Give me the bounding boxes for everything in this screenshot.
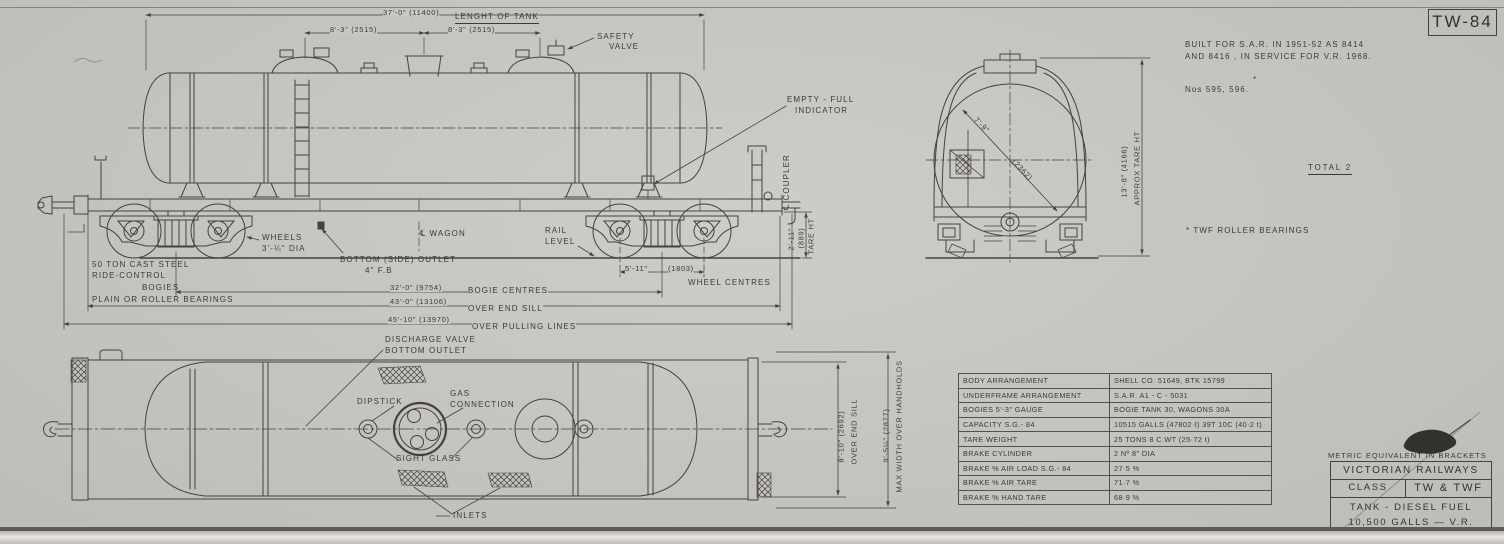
- label-discharge-valve: BOTTOM OUTLET: [385, 347, 467, 355]
- table-row: BRAKE % AIR TARE71·7 %: [959, 476, 1272, 491]
- ink-smudge: [1404, 420, 1470, 453]
- dim-max-width: MAX WIDTH OVER HANDHOLDS: [896, 360, 904, 492]
- dim-over-pulling-lines: 45'-10" (13970): [388, 316, 450, 324]
- drawing-sheet: 37'-0" (11400) LENGHT OF TANK 8'-3" (251…: [0, 0, 1504, 544]
- end-dome-bump: [100, 350, 122, 360]
- label-rail-level: RAIL: [545, 227, 567, 235]
- label-coupler-centreline: ℄ COUPLER: [783, 154, 791, 210]
- tank-valve: [471, 63, 487, 73]
- safety-valve-dome: [508, 40, 574, 73]
- dim-over-end-sill: 43'-0" (13106): [390, 298, 447, 306]
- spec-label: TARE WEIGHT: [959, 432, 1110, 447]
- walkway-hatch: [398, 470, 448, 487]
- label-bogie-centres: BOGIE CENTRES: [468, 287, 548, 295]
- label-gas-connection: CONNECTION: [450, 401, 515, 409]
- drawing-number: TW-84: [1428, 9, 1497, 36]
- label-bottom-outlet: 4" F.B: [365, 267, 393, 275]
- dim-tare-height: 2'-11": [788, 228, 796, 251]
- title-class-value: TW & TWF: [1406, 480, 1491, 497]
- spec-label: BODY ARRANGEMENT: [959, 374, 1110, 389]
- dim-tare-height: TARE HT: [808, 218, 816, 254]
- spec-value: 71·7 %: [1110, 476, 1272, 491]
- table-row: CAPACITY S.G.- 8410515 GALLS (47802 ℓ) 3…: [959, 417, 1272, 432]
- label-sight-glass: SIGHT GLASS: [396, 455, 461, 463]
- label-gas-connection: GAS: [450, 390, 470, 398]
- plan-dimensions: [762, 352, 896, 508]
- side-elevation: [38, 38, 800, 258]
- dim-bogie-centres: 32'-0" (9754): [390, 284, 442, 292]
- spec-label: BRAKE % AIR LOAD S.G.- 84: [959, 461, 1110, 476]
- drawing-canvas: [0, 0, 1504, 544]
- table-row: BRAKE CYLINDER2 Nº 8" DIA: [959, 446, 1272, 461]
- pencil-mark: [74, 58, 102, 62]
- label-over-pulling-lines: OVER PULLING LINES: [472, 323, 576, 331]
- dim-max-width: 9'-5¼" (2877): [883, 408, 891, 462]
- dim-dome-spacing-right: 8'-3" (2515): [448, 26, 495, 34]
- dim-wheel-centres: (1803): [668, 265, 694, 273]
- empty-full-leader: [654, 106, 786, 184]
- spec-label: BRAKE % AIR TARE: [959, 476, 1110, 491]
- spec-label: BRAKE % HAND TARE: [959, 490, 1110, 505]
- spec-value: 10515 GALLS (47802 ℓ) 39T 10C (40·2 t): [1110, 417, 1272, 432]
- rail-level-leader: [578, 246, 594, 256]
- table-row: BODY ARRANGEMENTSHELL CO. 51649, BTK 157…: [959, 374, 1272, 389]
- label-bearings: PLAIN OR ROLLER BEARINGS: [92, 296, 234, 304]
- label-empty-full: INDICATOR: [795, 107, 848, 115]
- label-wheels: WHEELS: [262, 234, 302, 242]
- table-row: BOGIES 5'-3" GAUGEBOGIE TANK 30, WAGONS …: [959, 403, 1272, 418]
- table-row: UNDERFRAME ARRANGEMENTS.A.R. A1 - C - 50…: [959, 388, 1272, 403]
- dim-plan-over-end-sill: 8'-10" (2692): [838, 411, 846, 463]
- label-bogies: BOGIES: [142, 284, 179, 292]
- spec-label: UNDERFRAME ARRANGEMENT: [959, 388, 1110, 403]
- handbrake-staff: [95, 156, 106, 199]
- label-rail-level: LEVEL: [545, 238, 575, 246]
- label-wheels: 3'-¼" DIA: [262, 245, 306, 253]
- note-total: TOTAL 2: [1308, 164, 1352, 175]
- label-safety-valve: VALVE: [609, 43, 639, 51]
- spec-value: 27·5 %: [1110, 461, 1272, 476]
- table-row: TARE WEIGHT25 TONS 8 C.WT (25·72 t): [959, 432, 1272, 447]
- dim-tank-length: 37'-0" (11400): [383, 9, 439, 17]
- metric-note: METRIC EQUIVALENT IN BRACKETS: [1328, 451, 1487, 460]
- title-description: TANK - DIESEL FUEL: [1331, 500, 1491, 515]
- spec-value: 2 Nº 8" DIA: [1110, 446, 1272, 461]
- tank-valve: [361, 63, 377, 73]
- label-bogies: RIDE-CONTROL: [92, 272, 166, 280]
- safety-valve-leader: [568, 38, 594, 49]
- spec-value: 68·9 %: [1110, 490, 1272, 505]
- sheet-bottom-margin: [0, 531, 1504, 544]
- note-fleet-numbers: Nos 595, 596.: [1185, 86, 1249, 94]
- label-over-end-sill: OVER END SILL: [468, 305, 543, 313]
- plan-view: [44, 350, 896, 516]
- dim-tare-height: (889): [798, 227, 806, 248]
- spec-label: BOGIES 5'-3" GAUGE: [959, 403, 1110, 418]
- label-safety-valve: SAFETY: [597, 33, 635, 41]
- end-elevation: [926, 50, 1150, 262]
- note-asterisk: *: [1253, 76, 1257, 84]
- label-bogies: 50 TON CAST STEEL: [92, 261, 189, 269]
- spec-label: BRAKE CYLINDER: [959, 446, 1110, 461]
- dim-wheel-centres: 5'-11": [625, 265, 648, 273]
- spec-value: S.A.R. A1 - C - 5031: [1110, 388, 1272, 403]
- title-class-label: CLASS: [1331, 480, 1406, 497]
- label-tank-length: LENGHT OF TANK: [455, 13, 539, 24]
- title-block: VICTORIAN RAILWAYS CLASS TW & TWF TANK -…: [1330, 461, 1492, 529]
- table-row: BRAKE % AIR LOAD S.G.- 8427·5 %: [959, 461, 1272, 476]
- title-company: VICTORIAN RAILWAYS: [1331, 462, 1491, 480]
- table-row: BRAKE % HAND TARE68·9 %: [959, 490, 1272, 505]
- dim-dome-spacing-left: 8'-3" (2515): [330, 26, 377, 34]
- dim-plan-over-end-sill: OVER END SILL: [851, 399, 859, 465]
- dim-approx-tare-height: APPROX TARE HT: [1134, 131, 1142, 206]
- label-empty-full: EMPTY - FULL: [787, 96, 854, 104]
- label-dipstick: DIPSTICK: [357, 398, 403, 406]
- handbrake-hatch: [757, 473, 771, 497]
- label-bottom-outlet: BOTTOM (SIDE) OUTLET: [340, 256, 456, 264]
- handbrake-hatch: [71, 360, 86, 382]
- label-discharge-valve: DISCHARGE VALVE: [385, 336, 476, 344]
- side-outlet: [318, 222, 324, 229]
- spec-value: BOGIE TANK 30, WAGONS 30A: [1110, 403, 1272, 418]
- coupler-left: [38, 196, 88, 232]
- note-twf-bearings: * TWF ROLLER BEARINGS: [1186, 227, 1309, 235]
- spec-value: 25 TONS 8 C.WT (25·72 t): [1110, 432, 1272, 447]
- note-built: BUILT FOR S.A.R. IN 1951-52 AS 8414: [1185, 41, 1364, 49]
- dim-approx-tare-height: 13'-8" (4166): [1121, 146, 1129, 198]
- note-built: AND 8416 , IN SERVICE FOR V.R. 1968.: [1185, 53, 1372, 61]
- walkway-hatch: [378, 366, 426, 384]
- label-inlets: INLETS: [453, 512, 488, 520]
- label-wheel-centres: WHEEL CENTRES: [688, 279, 771, 287]
- spec-value: SHELL CO. 51649, BTK 15799: [1110, 374, 1272, 389]
- spec-table: BODY ARRANGEMENTSHELL CO. 51649, BTK 157…: [958, 373, 1272, 505]
- walkway-hatch: [488, 473, 532, 487]
- ladder: [295, 80, 309, 197]
- spec-label: CAPACITY S.G.- 84: [959, 417, 1110, 432]
- label-wagon-centreline: ℄ WAGON: [420, 230, 466, 238]
